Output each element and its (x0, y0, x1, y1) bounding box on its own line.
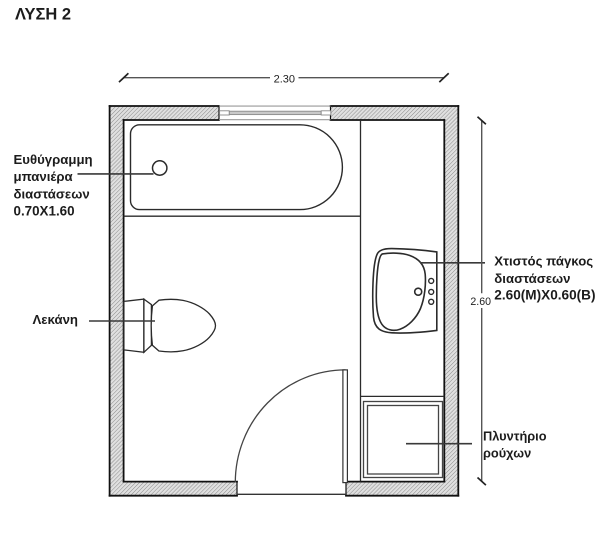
svg-text:Ευθύγραμμη: Ευθύγραμμη (14, 152, 93, 167)
svg-text:διαστάσεων: διαστάσεων (14, 186, 90, 201)
svg-text:Πλυντήριο: Πλυντήριο (483, 428, 547, 443)
svg-text:ΛΥΣΗ 2: ΛΥΣΗ 2 (15, 5, 71, 23)
svg-text:Χτιστός πάγκος: Χτιστός πάγκος (494, 253, 593, 268)
svg-text:2.60: 2.60 (470, 296, 491, 308)
svg-text:ρούχων: ρούχων (483, 446, 531, 461)
svg-text:0.70X1.60: 0.70X1.60 (14, 203, 75, 218)
svg-text:διαστάσεων: διαστάσεων (494, 271, 570, 286)
svg-text:μπανιέρα: μπανιέρα (14, 169, 73, 184)
svg-text:Λεκάνη: Λεκάνη (33, 312, 78, 327)
svg-text:2.60(Μ)Χ0.60(Β): 2.60(Μ)Χ0.60(Β) (494, 288, 595, 303)
svg-text:2.30: 2.30 (274, 73, 295, 85)
